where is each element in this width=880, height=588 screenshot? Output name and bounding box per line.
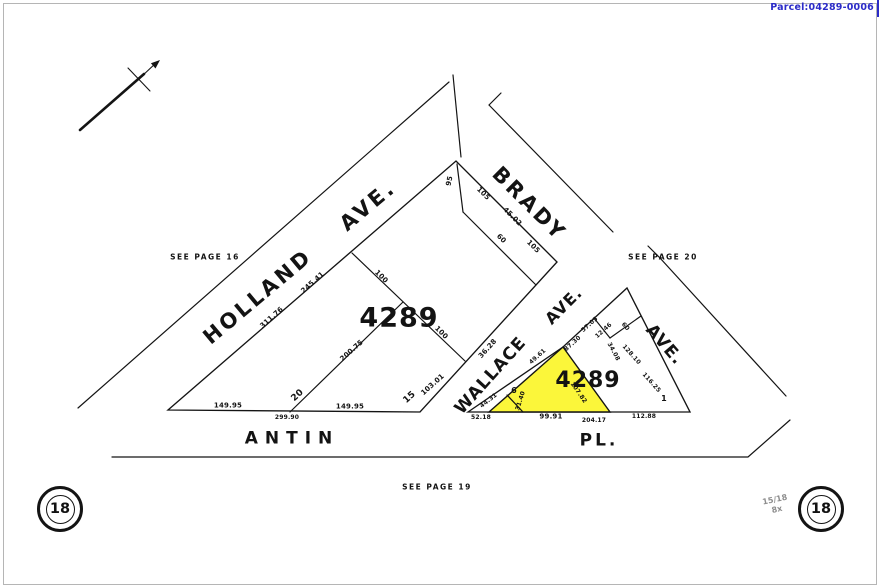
page-number: 18 (807, 495, 836, 524)
map-linework (0, 0, 880, 588)
street-end-line (453, 75, 461, 157)
page-number-badge-left: 18 (37, 486, 83, 532)
antin-pl-far-line (112, 420, 790, 457)
brady-corner-tick (489, 93, 501, 105)
dimension-label: 112.88 (632, 414, 656, 420)
block-number: 4289 (555, 370, 620, 392)
lot-line (463, 212, 536, 285)
block-number: 4289 (359, 305, 438, 332)
north-arrow-icon (80, 60, 160, 130)
dimension-label: 149.95 (214, 403, 242, 410)
holland-ave-far-line (78, 82, 449, 408)
page-edge-marker (877, 0, 879, 17)
street-label-antin-pl: PL. (580, 433, 619, 450)
page-number: 18 (46, 495, 75, 524)
dimension-label: 99.91 (539, 414, 562, 421)
tax-map-page: Parcel:04289-0006 SEE PAGE 16 SEE PAGE 2… (0, 0, 880, 588)
dimension-label: 299.90 (275, 415, 299, 421)
dimension-label: 52.18 (471, 415, 491, 421)
avenue-far-line (660, 258, 786, 396)
lot-line (457, 164, 463, 212)
see-page-east: SEE PAGE 20 (628, 253, 698, 261)
see-page-south: SEE PAGE 19 (402, 483, 472, 491)
dimension-label: 149.95 (336, 404, 364, 411)
lot-number: 1 (661, 395, 667, 403)
street-label-antin: ANTIN (245, 431, 340, 448)
see-page-west: SEE PAGE 16 (170, 253, 240, 261)
parcel-id-label: Parcel:04289-0006 (770, 2, 874, 13)
page-number-badge-right: 18 (798, 486, 844, 532)
lot-number: 6 (511, 387, 517, 395)
dimension-label: 204.17 (582, 418, 606, 424)
